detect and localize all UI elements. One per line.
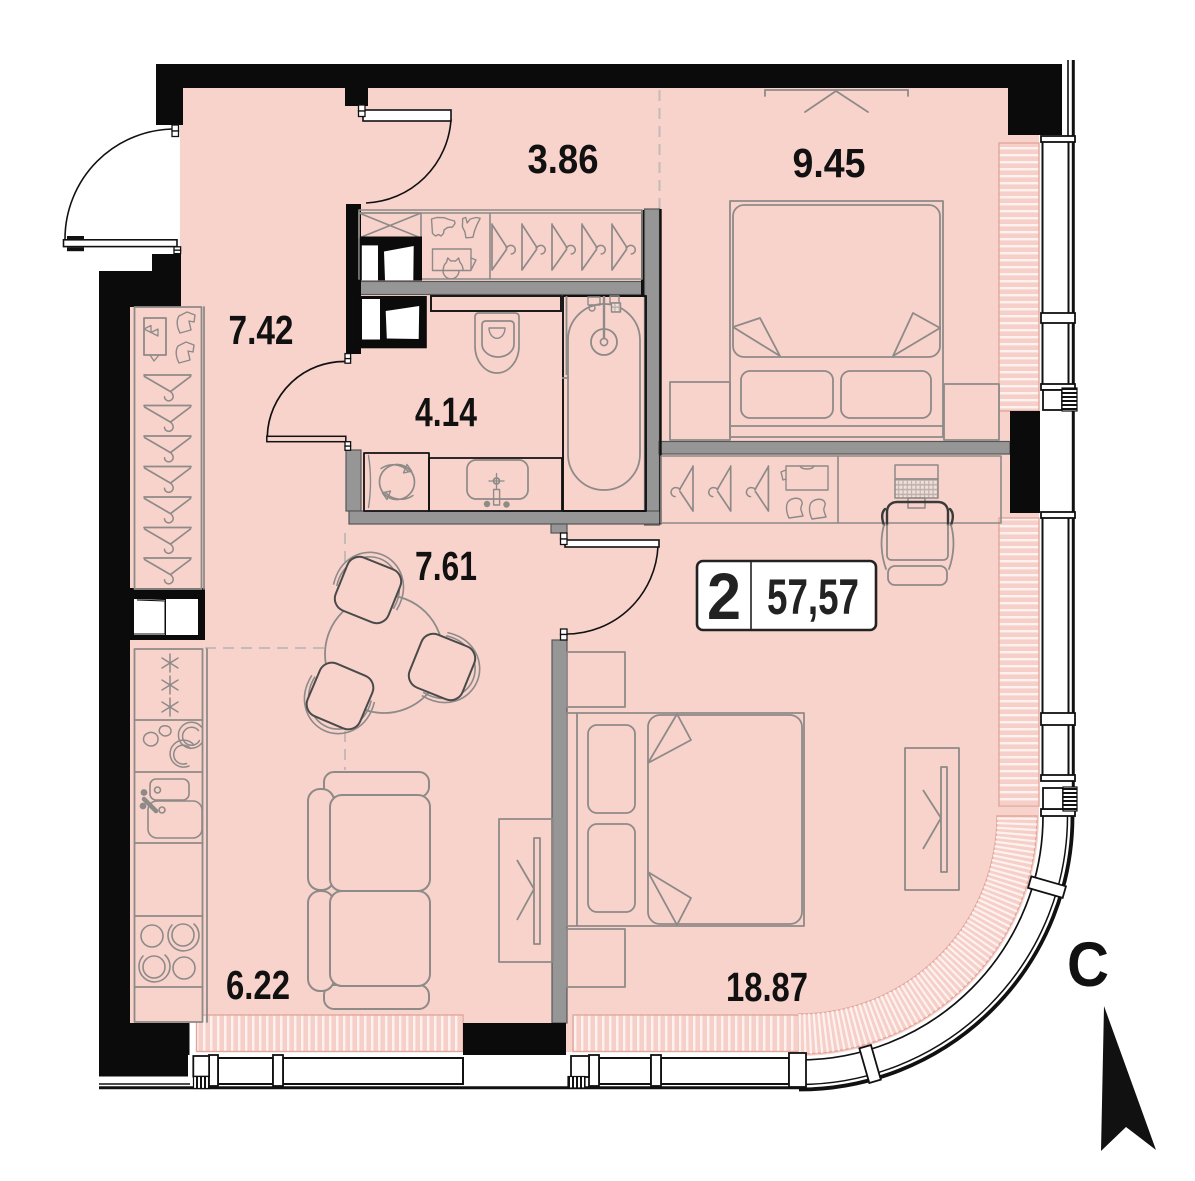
svg-text:С: С <box>1067 930 1109 1000</box>
svg-text:7.61: 7.61 <box>415 543 477 589</box>
svg-text:3.86: 3.86 <box>528 136 599 182</box>
svg-text:2: 2 <box>707 559 741 633</box>
svg-text:9.45: 9.45 <box>793 140 866 186</box>
svg-text:7.42: 7.42 <box>229 307 294 353</box>
svg-text:4.14: 4.14 <box>415 389 477 435</box>
svg-text:18.87: 18.87 <box>726 964 808 1010</box>
svg-text:57,57: 57,57 <box>767 569 859 625</box>
svg-text:6.22: 6.22 <box>226 962 290 1008</box>
